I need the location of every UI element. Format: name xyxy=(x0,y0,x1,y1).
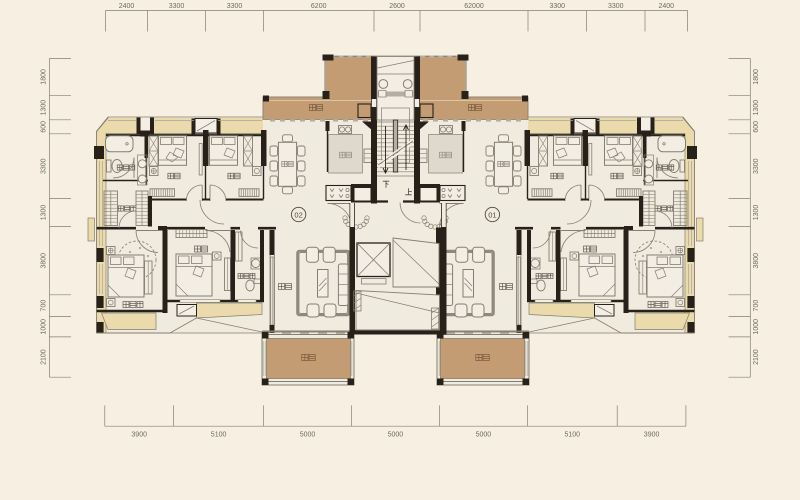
svg-text:1300: 1300 xyxy=(753,205,760,221)
svg-text:2400: 2400 xyxy=(119,3,135,10)
svg-text:3300: 3300 xyxy=(550,3,566,10)
svg-text:3300: 3300 xyxy=(608,3,624,10)
svg-text:2100: 2100 xyxy=(753,349,760,365)
svg-text:3300: 3300 xyxy=(169,3,185,10)
svg-text:1000: 1000 xyxy=(41,319,48,335)
svg-text:62000: 62000 xyxy=(464,3,484,10)
svg-text:02: 02 xyxy=(294,210,302,219)
svg-text:3300: 3300 xyxy=(41,158,48,174)
svg-text:3300: 3300 xyxy=(227,3,243,10)
svg-text:3900: 3900 xyxy=(131,432,147,439)
svg-text:1300: 1300 xyxy=(753,100,760,116)
svg-text:01: 01 xyxy=(488,210,496,219)
svg-text:3800: 3800 xyxy=(41,253,48,269)
svg-text:3800: 3800 xyxy=(753,253,760,269)
svg-text:600: 600 xyxy=(753,121,760,133)
svg-text:1300: 1300 xyxy=(41,205,48,221)
svg-text:5100: 5100 xyxy=(565,432,581,439)
svg-text:3300: 3300 xyxy=(753,158,760,174)
svg-text:5100: 5100 xyxy=(211,432,227,439)
svg-text:2400: 2400 xyxy=(659,3,675,10)
svg-text:6200: 6200 xyxy=(311,3,327,10)
svg-text:1000: 1000 xyxy=(753,319,760,335)
svg-text:1800: 1800 xyxy=(753,69,760,85)
svg-text:5000: 5000 xyxy=(300,432,316,439)
svg-text:5000: 5000 xyxy=(476,432,492,439)
svg-text:1300: 1300 xyxy=(41,100,48,116)
svg-text:700: 700 xyxy=(753,300,760,312)
svg-text:2100: 2100 xyxy=(41,349,48,365)
svg-text:5000: 5000 xyxy=(388,432,404,439)
svg-text:2600: 2600 xyxy=(389,3,405,10)
svg-text:1800: 1800 xyxy=(41,69,48,85)
svg-text:700: 700 xyxy=(41,300,48,312)
svg-text:600: 600 xyxy=(41,121,48,133)
svg-text:3900: 3900 xyxy=(644,432,660,439)
